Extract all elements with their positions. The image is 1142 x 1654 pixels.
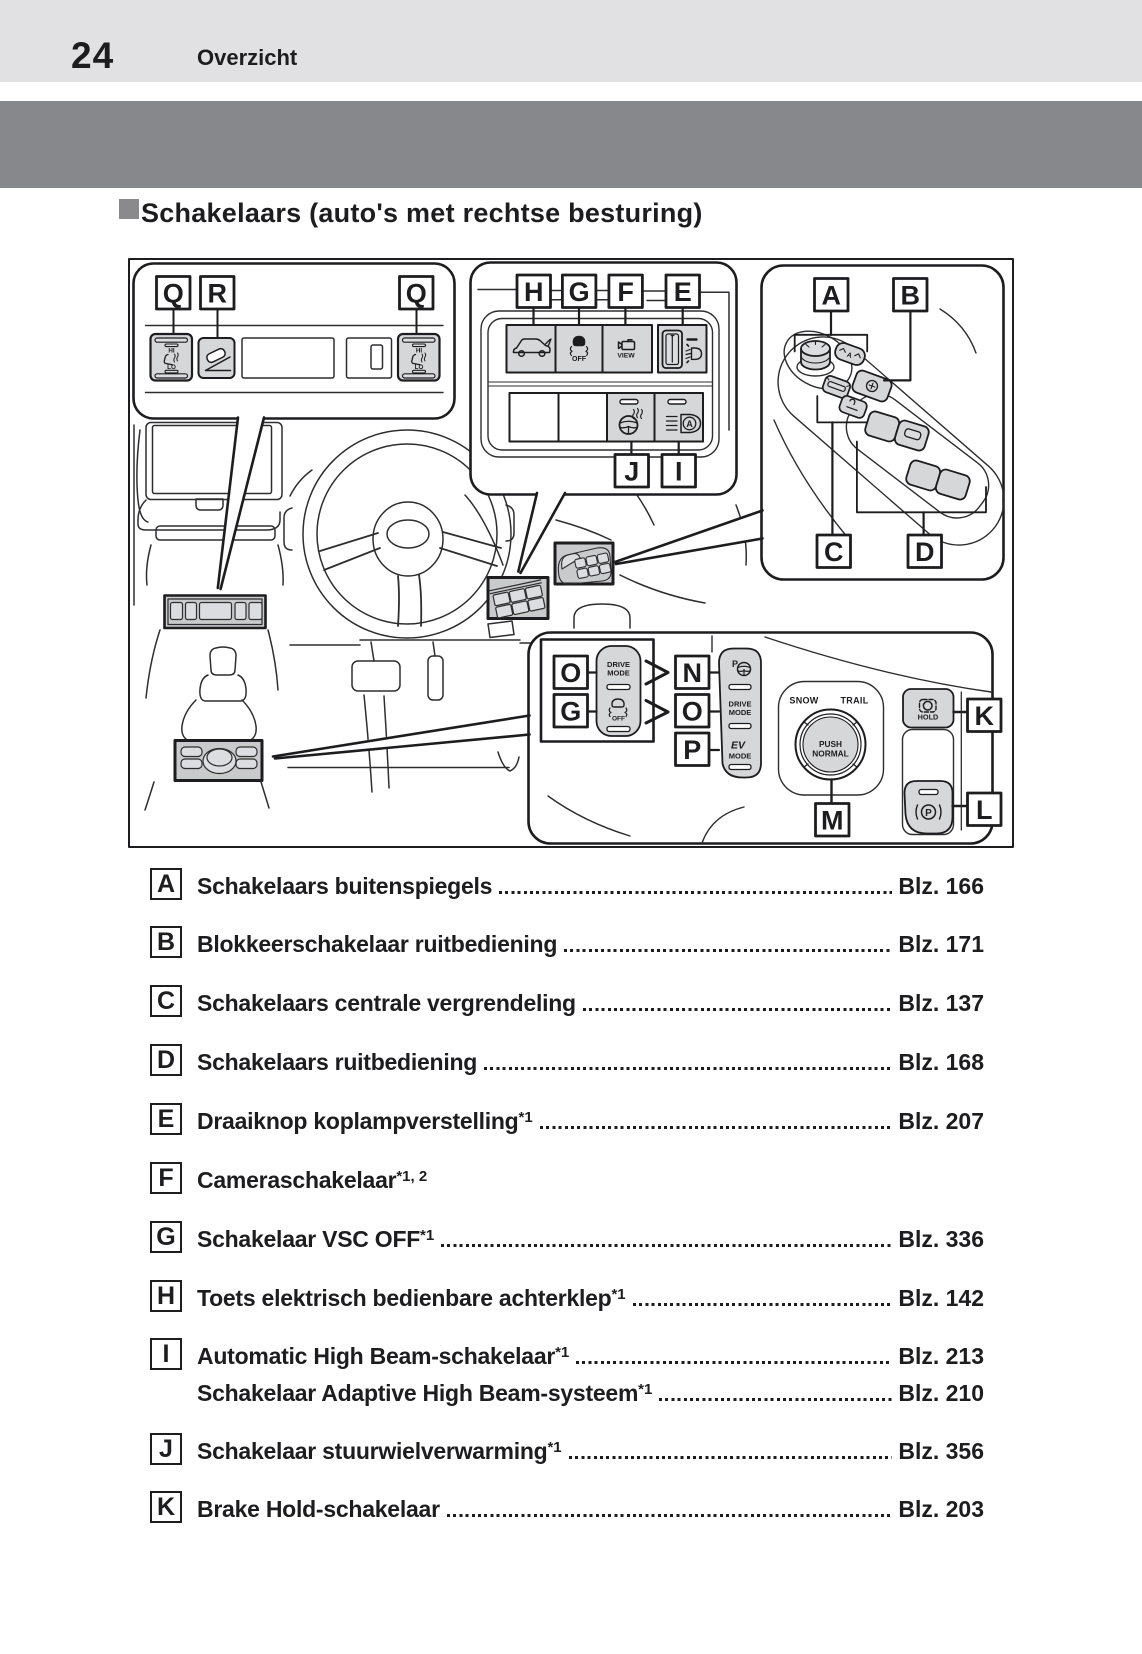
svg-text:N: N (683, 658, 703, 688)
svg-text:B: B (901, 280, 921, 310)
svg-text:SNOW: SNOW (789, 696, 818, 706)
svg-text:PUSH: PUSH (819, 739, 842, 749)
svg-text:G: G (560, 696, 581, 726)
svg-text:O: O (682, 696, 703, 726)
svg-text:Q: Q (163, 278, 184, 308)
svg-text:A: A (822, 280, 842, 310)
svg-text:HOLD: HOLD (918, 713, 939, 722)
svg-text:EV: EV (731, 740, 746, 752)
svg-text:HI: HI (168, 348, 175, 355)
svg-text:OFF: OFF (572, 356, 587, 363)
svg-text:I: I (675, 456, 683, 486)
svg-text:NORMAL: NORMAL (812, 749, 848, 759)
svg-text:O: O (560, 658, 581, 688)
svg-text:F: F (617, 277, 634, 307)
svg-text:D: D (915, 537, 935, 567)
svg-text:J: J (624, 456, 639, 486)
svg-text:P: P (925, 808, 932, 819)
svg-text:VIEW: VIEW (617, 353, 635, 360)
svg-text:H: H (524, 277, 544, 307)
svg-text:C: C (824, 537, 844, 567)
svg-text:TRAIL: TRAIL (841, 696, 869, 706)
svg-text:MODE: MODE (729, 708, 752, 717)
svg-text:MODE: MODE (607, 669, 630, 678)
svg-text:Q: Q (406, 278, 427, 308)
svg-text:R: R (208, 278, 228, 308)
svg-text:HI: HI (416, 348, 423, 355)
svg-text:K: K (975, 701, 995, 731)
svg-text:G: G (569, 277, 590, 307)
svg-text:P: P (683, 735, 701, 765)
svg-text:L: L (976, 795, 993, 825)
svg-text:E: E (674, 277, 692, 307)
svg-text:A: A (686, 419, 693, 429)
svg-text:OFF: OFF (612, 716, 625, 723)
svg-text:M: M (821, 805, 844, 835)
svg-text:MODE: MODE (729, 752, 752, 761)
